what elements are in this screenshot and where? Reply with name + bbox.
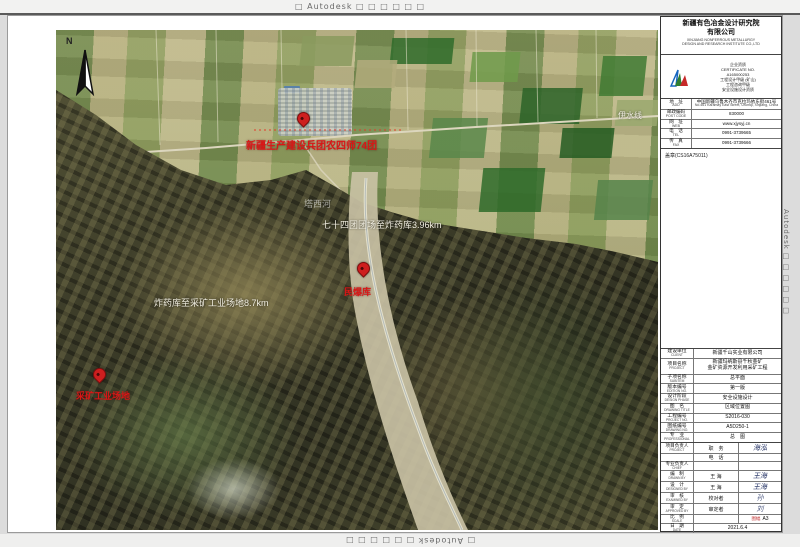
chief-row: 专业负责人CHIEF (661, 462, 781, 471)
autodesk-watermark-top: □ Autodesk □ □ □ □ □ □ (295, 2, 425, 11)
route2-annotation: 炸药库至采矿工业场地8.7km (154, 296, 269, 309)
stamp-note: 盖章(CS16A75011) (665, 152, 708, 159)
signature-table: 项目负责人PROJECT 职 务 海泓 电 话 专业负责人CHIEF 编 制DR… (661, 443, 781, 531)
edition-row: 版本编号EDITION NO. 第一版 (661, 384, 781, 394)
phase-row: 设计阶段DESIGN PHASE 安全设施设计 (661, 394, 781, 404)
site-annotation: 采矿工业场地 (76, 389, 130, 402)
route1-annotation: 七十四团团场至炸药库3.96km (322, 218, 442, 231)
drawn-by-row: 编 制DRAWN BY 王 海 王海 (661, 471, 781, 482)
certificate-section: 企业资质 CERTIFICATE NO. A165000253 工程设计甲级 (… (661, 55, 781, 99)
company-header: 新疆有色冶金设计研究院 有限公司 XINJIANG NONFERROUS MET… (661, 17, 781, 55)
drawing-no-row: 图纸编号DRAWING NO. A5D250-1 (661, 423, 781, 433)
company-name-en2: DESIGN AND RESEARCH INSTITUTE CO.,LTD (667, 43, 775, 47)
client-row: 建设单位CLIENT 新疆千山实业有限公司 (661, 349, 781, 359)
autodesk-watermark-bottom: □ Autodesk □ □ □ □ □ □ (345, 536, 475, 545)
town-annotation: 新疆生产建设兵团农四师74团 (246, 137, 377, 152)
discipline-row: 专 业PROFESSIONAL 总 图 (661, 433, 781, 442)
designed-by-row: 设 计DESIGNED BY 王 海 王海 (661, 482, 781, 493)
autodesk-watermark-right: Autodesk □ □ □ □ □ □ (782, 209, 790, 315)
leader-row: 项目负责人PROJECT 职 务 海泓 (661, 443, 781, 454)
north-arrow: N (68, 48, 102, 105)
date-value: 2021.6.4 (694, 524, 781, 532)
signature: 王海 (739, 471, 781, 481)
project-info-table: 建设单位CLIENT 新疆千山实业有限公司 项目名称PROJECT 新疆玛纳斯县… (661, 349, 781, 443)
address-table: 地 址ADD 中国新疆乌鲁木齐市克拉玛依东街461号No.461 Karamay… (661, 99, 781, 149)
project-row: 项目名称PROJECT 新疆玛纳斯县千秋金矿金矿资源开发利用采矿工程 (661, 359, 781, 375)
certificate-text: 企业资质 CERTIFICATE NO. A165000253 工程设计甲级 (… (695, 62, 781, 92)
examined-by-row: 审 核EXAMINED BY 校对者 孙 (661, 493, 781, 504)
road-name-label: 伊水线 (618, 110, 642, 121)
subitem-row: 子项名称SUBITEM 总平面 (661, 375, 781, 385)
signature: 海泓 (739, 443, 781, 453)
sheet-size-stamp: 图幅 (751, 516, 760, 522)
drawing-title-row: 图 名DRAWING TITLE 区域位置图 (661, 404, 781, 414)
app-window: □ Autodesk □ □ □ □ □ □ □ Autodesk □ □ □ … (0, 0, 800, 547)
date-row: 日 期DATE 2021.6.4 (661, 524, 781, 532)
satellite-map-canvas[interactable]: N 新疆生产建设兵团农四师74团 七十四团团场至炸药库3.96km 塔西河 民爆… (56, 30, 658, 530)
project-no-row: 工程编号PROJECT NO. S2016-030 (661, 414, 781, 424)
river-valley-layer (56, 30, 658, 530)
title-block: 新疆有色冶金设计研究院 有限公司 XINJIANG NONFERROUS MET… (660, 16, 782, 532)
company-name-cn2: 有限公司 (661, 29, 781, 38)
signature: 孙 (739, 493, 781, 503)
stamp-area: 盖章(CS16A75011) (661, 149, 781, 349)
river-label: 塔西河 (304, 197, 331, 210)
north-label: N (66, 36, 73, 46)
drawing-sheet: N 新疆生产建设兵团农四师74团 七十四团团场至炸药库3.96km 塔西河 民爆… (7, 15, 783, 533)
signature: 王海 (739, 482, 781, 492)
company-name-cn: 新疆有色冶金设计研究院 (661, 20, 781, 29)
company-logo-icon (661, 64, 695, 90)
fax-row: 传 真FAX 0991-3739666 (661, 139, 781, 148)
signature: 刘 (739, 504, 781, 514)
depot-annotation: 民爆库 (344, 285, 371, 298)
